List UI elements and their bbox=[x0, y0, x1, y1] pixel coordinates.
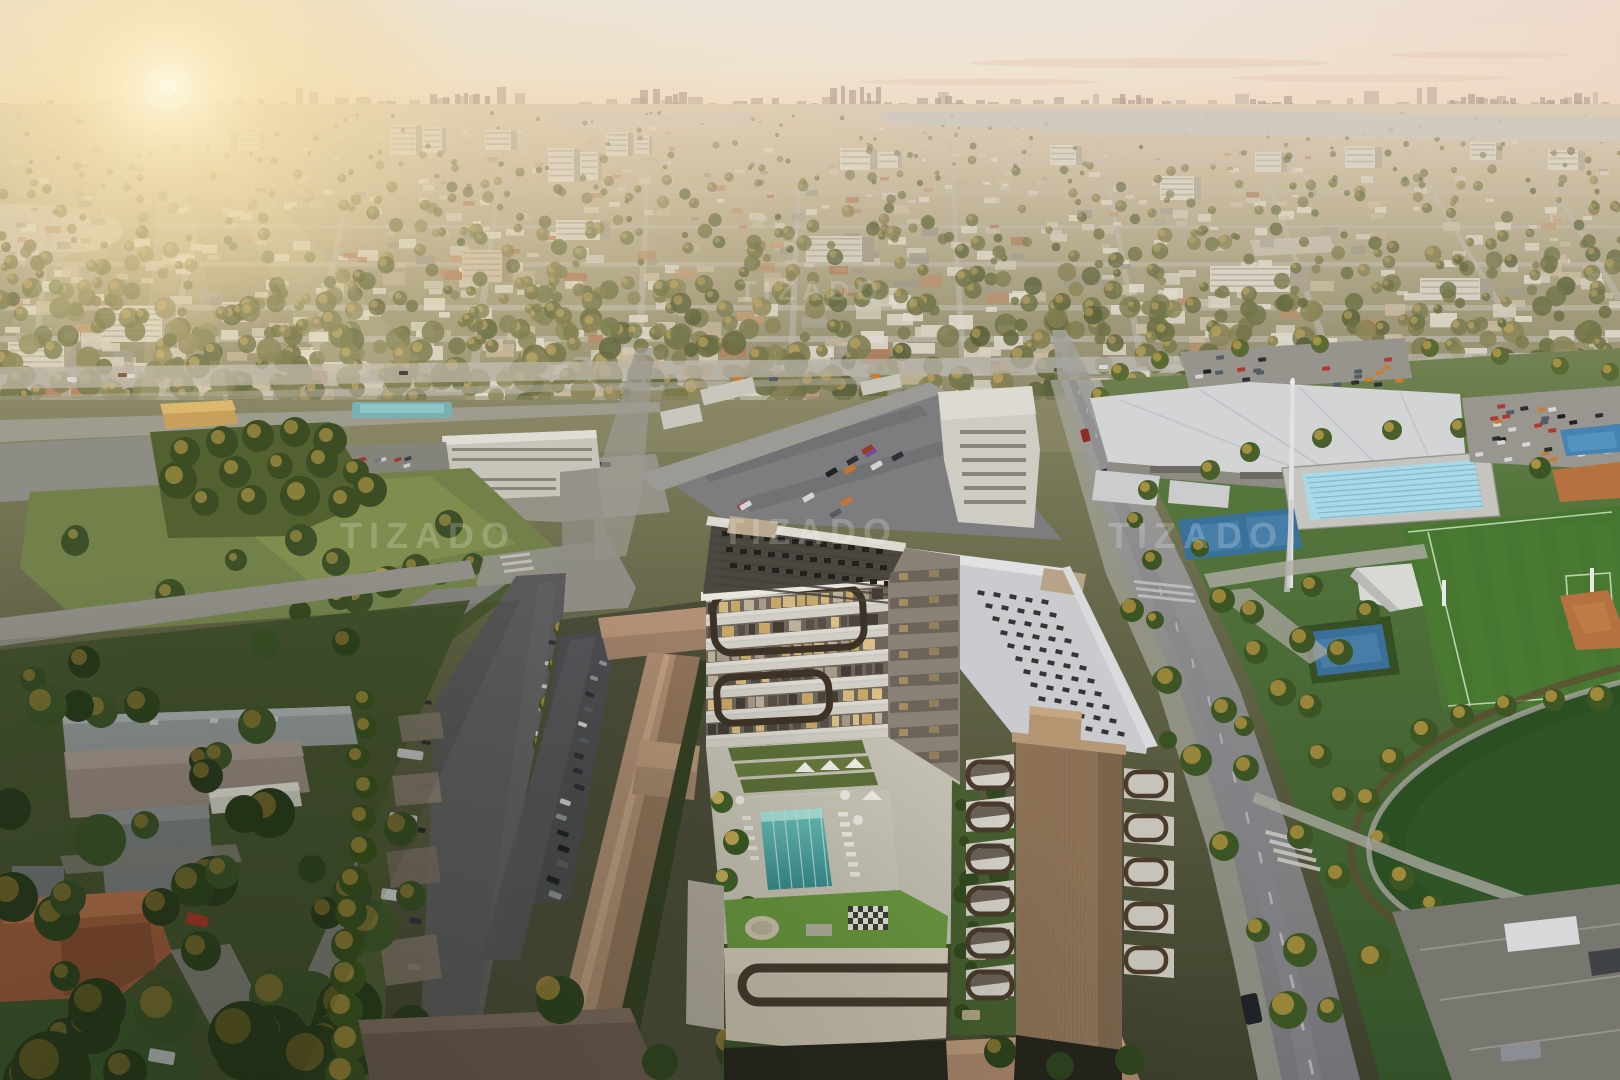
svg-text:TIZADO: TIZADO bbox=[722, 511, 898, 552]
svg-text:TIZADO: TIZADO bbox=[739, 275, 885, 306]
svg-text:TIZADO: TIZADO bbox=[1108, 515, 1284, 556]
svg-text:TIZADO: TIZADO bbox=[340, 515, 516, 556]
